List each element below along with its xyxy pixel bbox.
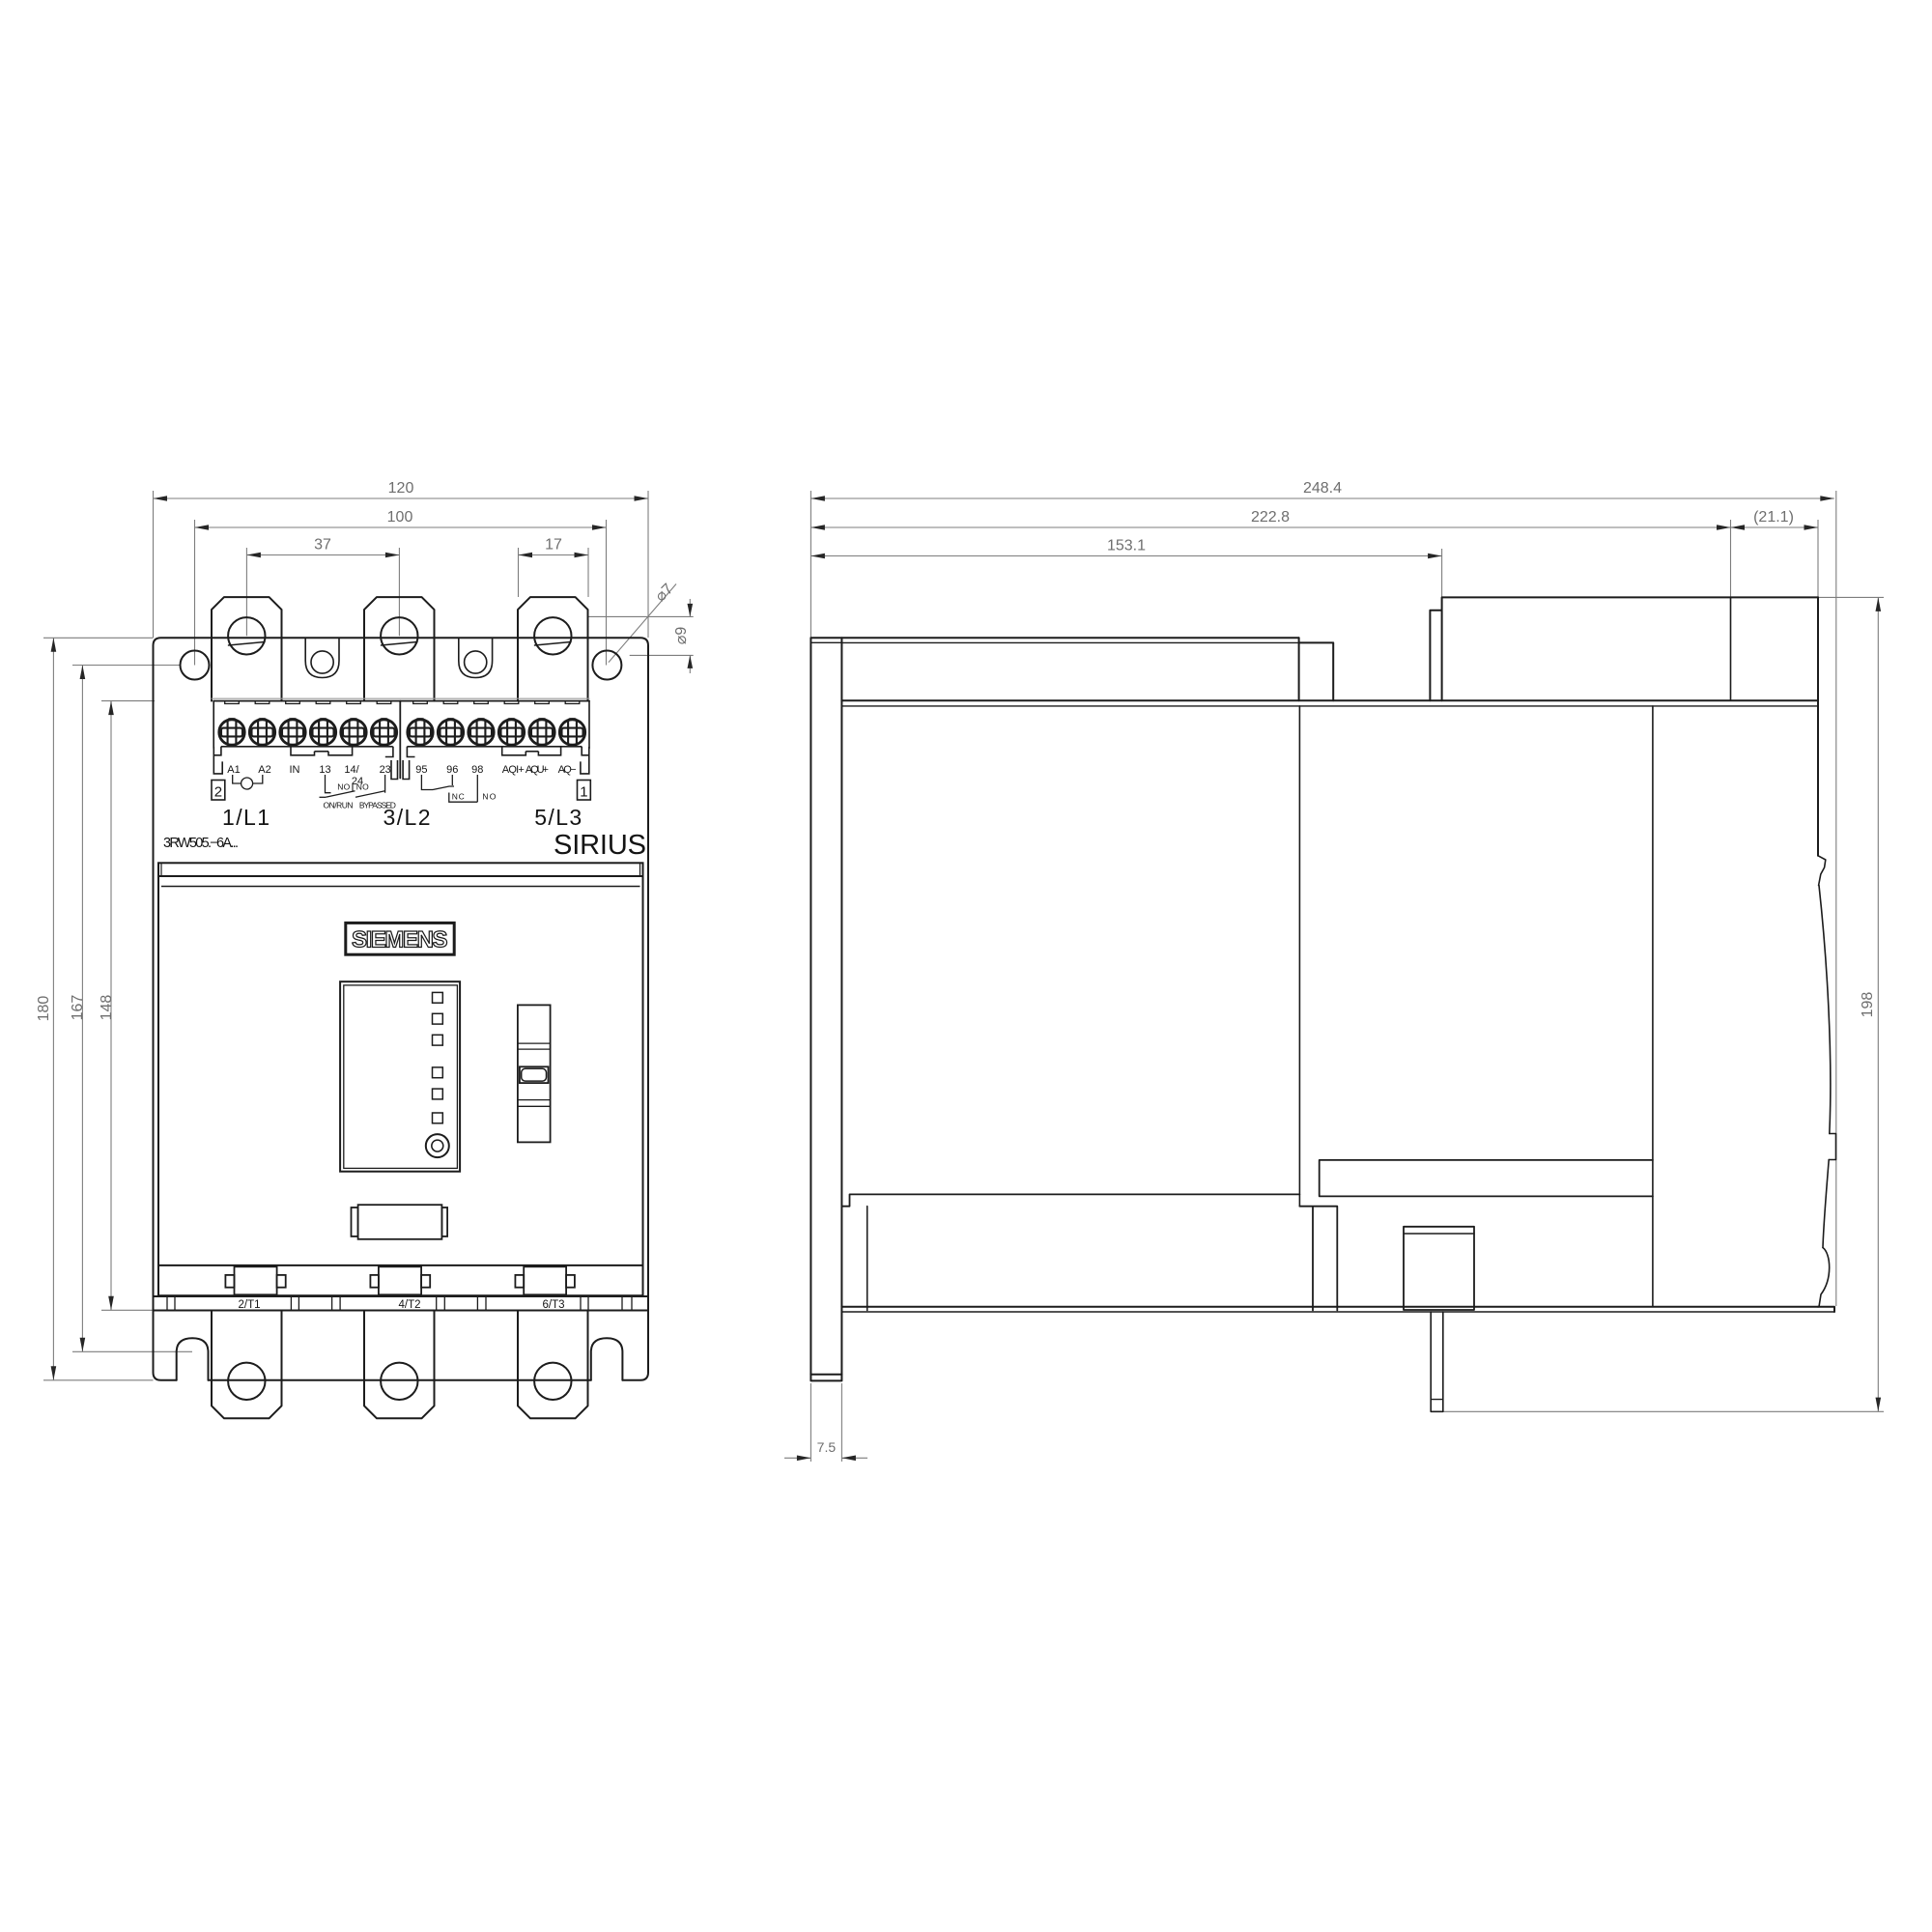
svg-text:ON/RUN: ON/RUN xyxy=(324,801,354,810)
svg-text:NC: NC xyxy=(452,792,465,802)
svg-text:⌀9: ⌀9 xyxy=(673,627,690,645)
svg-text:SIEMENS: SIEMENS xyxy=(352,927,448,953)
svg-text:248.4: 248.4 xyxy=(1303,480,1342,497)
svg-text:IN: IN xyxy=(290,764,300,776)
svg-text:SIRIUS: SIRIUS xyxy=(554,830,648,861)
svg-text:AQ−: AQ− xyxy=(558,764,577,776)
svg-text:198: 198 xyxy=(1860,992,1876,1018)
svg-text:95: 95 xyxy=(415,764,427,776)
svg-text:1: 1 xyxy=(580,784,587,801)
svg-text:153.1: 153.1 xyxy=(1107,538,1146,554)
svg-text:96: 96 xyxy=(446,764,458,776)
svg-text:1/L1: 1/L1 xyxy=(222,805,270,830)
svg-text:222.8: 222.8 xyxy=(1251,509,1290,526)
svg-text:3RW505.−6A...: 3RW505.−6A... xyxy=(163,836,239,851)
svg-text:120: 120 xyxy=(388,480,414,497)
svg-text:NO: NO xyxy=(356,782,369,792)
svg-text:A1: A1 xyxy=(227,764,240,776)
svg-text:NO: NO xyxy=(482,792,496,802)
svg-text:17: 17 xyxy=(545,537,562,554)
svg-text:3/L2: 3/L2 xyxy=(384,805,431,830)
svg-text:2: 2 xyxy=(214,784,222,801)
svg-text:167: 167 xyxy=(70,995,86,1021)
svg-text:14/: 14/ xyxy=(344,764,359,776)
svg-text:2/T1: 2/T1 xyxy=(238,1299,260,1311)
svg-text:4/T2: 4/T2 xyxy=(398,1299,420,1311)
svg-text:AQI+: AQI+ xyxy=(502,764,525,776)
svg-text:AQU+: AQU+ xyxy=(526,764,549,776)
svg-text:148: 148 xyxy=(99,995,115,1021)
svg-text:100: 100 xyxy=(387,509,413,526)
svg-text:7.5: 7.5 xyxy=(817,1439,837,1455)
svg-text:5/L3: 5/L3 xyxy=(534,805,582,830)
svg-text:98: 98 xyxy=(471,764,483,776)
svg-text:(21.1): (21.1) xyxy=(1753,509,1794,526)
svg-text:180: 180 xyxy=(36,996,52,1022)
svg-text:A2: A2 xyxy=(258,764,270,776)
svg-text:6/T3: 6/T3 xyxy=(542,1299,564,1311)
svg-text:13: 13 xyxy=(319,764,330,776)
svg-text:NO: NO xyxy=(337,782,350,792)
svg-text:23: 23 xyxy=(380,764,391,776)
svg-text:37: 37 xyxy=(314,537,331,554)
